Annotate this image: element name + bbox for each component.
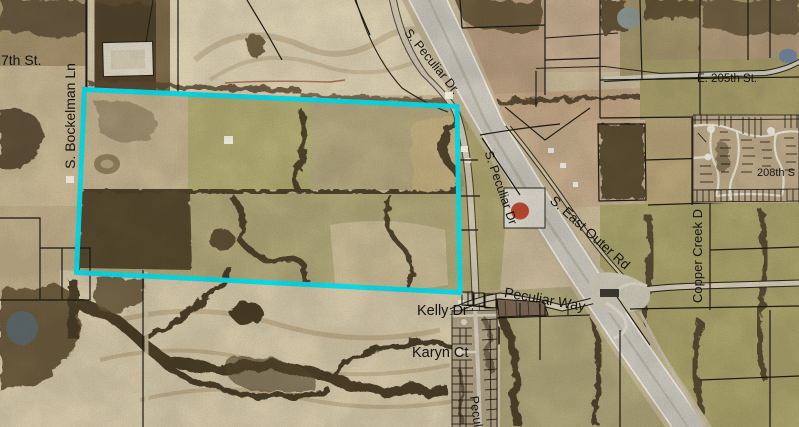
svg-text:E. 205th St.: E. 205th St.: [697, 73, 757, 85]
svg-text:208th S: 208th S: [757, 167, 795, 179]
svg-text:7th St.: 7th St.: [1, 52, 41, 68]
svg-text:Copper Creek D: Copper Creek D: [690, 209, 705, 303]
svg-text:S. Bockelman Ln: S. Bockelman Ln: [62, 63, 78, 169]
svg-text:Kelly Dr: Kelly Dr: [417, 303, 468, 319]
svg-text:Karyn Ct: Karyn Ct: [412, 345, 468, 361]
